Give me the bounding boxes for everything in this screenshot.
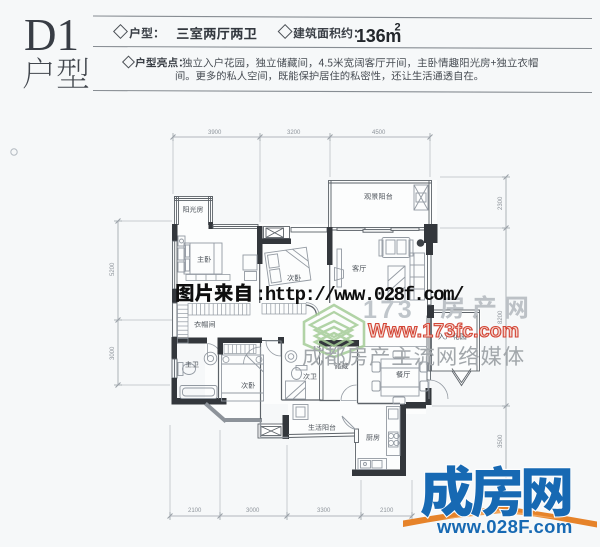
svg-text:2100: 2100 <box>188 508 202 514</box>
svg-text:2100: 2100 <box>380 508 394 514</box>
svg-text:3000: 3000 <box>110 346 116 360</box>
svg-text:3300: 3300 <box>317 508 331 514</box>
svg-text:3000: 3000 <box>246 508 260 514</box>
svg-text:3500: 3500 <box>498 434 504 448</box>
svg-text:www.028F.com: www.028F.com <box>436 516 573 537</box>
svg-text:5200: 5200 <box>110 262 116 276</box>
svg-text:3200: 3200 <box>287 130 301 136</box>
svg-text:Www.173fc.com: Www.173fc.com <box>368 320 519 342</box>
svg-text:4500: 4500 <box>372 130 386 136</box>
svg-text:3900: 3900 <box>208 130 222 136</box>
svg-text::http://www.028f.com/: :http://www.028f.com/ <box>255 284 464 306</box>
svg-text:D1: D1 <box>24 10 79 60</box>
svg-text:2: 2 <box>395 22 401 34</box>
svg-text:2300: 2300 <box>498 196 504 210</box>
